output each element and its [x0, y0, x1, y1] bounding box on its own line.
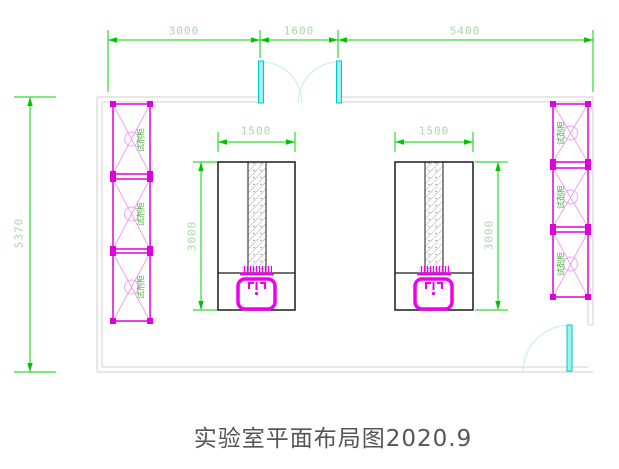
- cad-floorplan-canvas: 3000 1600 5400 5370 1500 3000 1500 3000 …: [0, 0, 619, 469]
- reagent-cabinets-left: [110, 101, 153, 324]
- cabinet-label: 试剂柜: [556, 121, 567, 145]
- drawing-title: 实验室平面布局图2020.9: [194, 419, 472, 453]
- dim-bench-left-depth-label: 3000: [186, 221, 199, 252]
- dim-top-door-label: 1600: [284, 25, 315, 38]
- cabinet-label: 试剂柜: [136, 275, 147, 299]
- door-swing-arc: [523, 325, 570, 372]
- side-single-door: [523, 325, 572, 372]
- dim-top-left-label: 3000: [169, 25, 200, 38]
- room-walls: [97, 97, 593, 372]
- dim-bench-right-depth-label: 3000: [483, 220, 496, 251]
- cabinet-label: 试剂柜: [556, 252, 567, 276]
- dim-top-right-label: 5400: [450, 25, 481, 38]
- cabinet-label: 试剂柜: [136, 202, 147, 226]
- floorplan-geometry: [0, 0, 619, 469]
- dim-room-height-label: 5370: [13, 218, 26, 249]
- workbench-right: [395, 162, 473, 310]
- door-swing-arc: [261, 62, 302, 103]
- bench-hatch-strip: [425, 162, 443, 273]
- door-swing-arc: [298, 62, 339, 103]
- sink-icon: [415, 266, 452, 309]
- top-double-door: [259, 61, 342, 103]
- workbench-left: [218, 162, 295, 310]
- bench-hatch-strip: [248, 162, 266, 273]
- door-leaf-icon: [567, 325, 572, 371]
- dim-bench-right-width-label: 1500: [419, 125, 450, 138]
- dim-bench-left-width-label: 1500: [241, 125, 272, 138]
- sink-icon: [238, 266, 275, 309]
- door-leaf-icon: [259, 61, 264, 103]
- cabinet-label: 试剂柜: [556, 185, 567, 209]
- door-leaf-icon: [337, 61, 342, 103]
- cabinet-label: 试剂柜: [136, 128, 147, 152]
- dimension-top: [108, 30, 593, 92]
